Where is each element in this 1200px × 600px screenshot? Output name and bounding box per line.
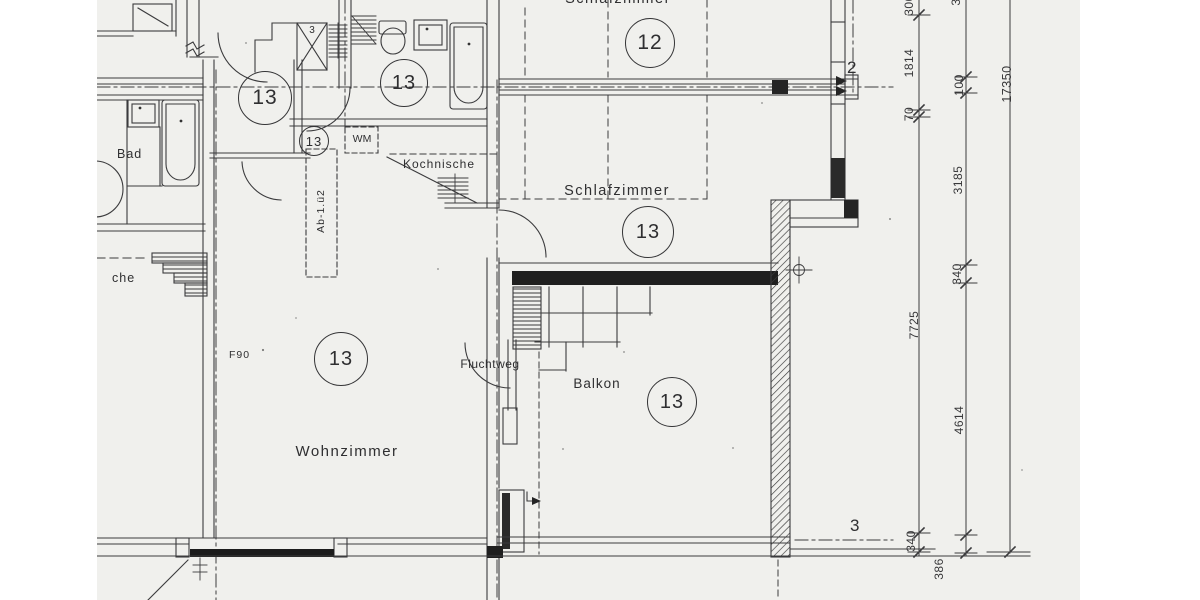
room-label-schlafzimmer-top: Schlafzimmer <box>560 0 676 7</box>
room-label-wohnzimmer: Wohnzimmer <box>291 443 403 460</box>
label-f90: F90 <box>229 349 250 361</box>
dim-100: 100 <box>952 50 966 120</box>
label-fluchtweg: Fluchtweg <box>450 357 530 371</box>
room-label-bad: Bad <box>117 147 142 161</box>
unit-circle-13-small: 13 <box>299 126 329 156</box>
label-duct: Ab-1.ü2 <box>315 156 327 266</box>
floorplan-drawing <box>0 0 1200 600</box>
balcony-rail-hatch <box>771 200 790 557</box>
label-shaft-number: 3 <box>303 25 321 36</box>
dim-4614: 4614 <box>952 385 966 455</box>
dim-17350-overall: 17350 <box>1000 49 1014 119</box>
escape-ladder <box>513 287 541 349</box>
dim-3185: 3185 <box>951 145 965 215</box>
floorplan-scan: Schlafzimmer Schlafzimmer Wohnzimmer Bal… <box>0 0 1200 600</box>
unit-circle-13-d: 13 <box>314 332 368 386</box>
unit-circle-13-c: 13 <box>622 206 674 258</box>
right-margin <box>1080 0 1200 600</box>
room-label-balkon: Balkon <box>566 376 628 391</box>
dim-7725: 7725 <box>907 290 921 360</box>
unit-circle-12: 12 <box>625 18 675 68</box>
label-wm: WM <box>347 133 377 145</box>
room-label-kochnische: Kochnische <box>395 157 483 171</box>
room-label-schlafzimmer: Schlafzimmer <box>559 183 675 199</box>
unit-circle-13-b: 13 <box>380 59 428 107</box>
axis-marker-3: 3 <box>850 516 859 536</box>
dim-70: 70 <box>902 79 916 149</box>
dim-340-outer: 340 <box>950 239 964 309</box>
dim-3-partial: 3 <box>949 0 963 37</box>
dim-340-inner: 340 <box>904 506 918 576</box>
room-label-kueche-partial: che <box>112 271 135 285</box>
dim-386: 386 <box>932 534 946 600</box>
left-margin <box>0 0 97 600</box>
unit-circle-13-e: 13 <box>647 377 697 427</box>
unit-circle-13-a: 13 <box>238 71 292 125</box>
balcony-wall-band <box>512 271 778 285</box>
axis-marker-2: 2 <box>847 58 856 78</box>
